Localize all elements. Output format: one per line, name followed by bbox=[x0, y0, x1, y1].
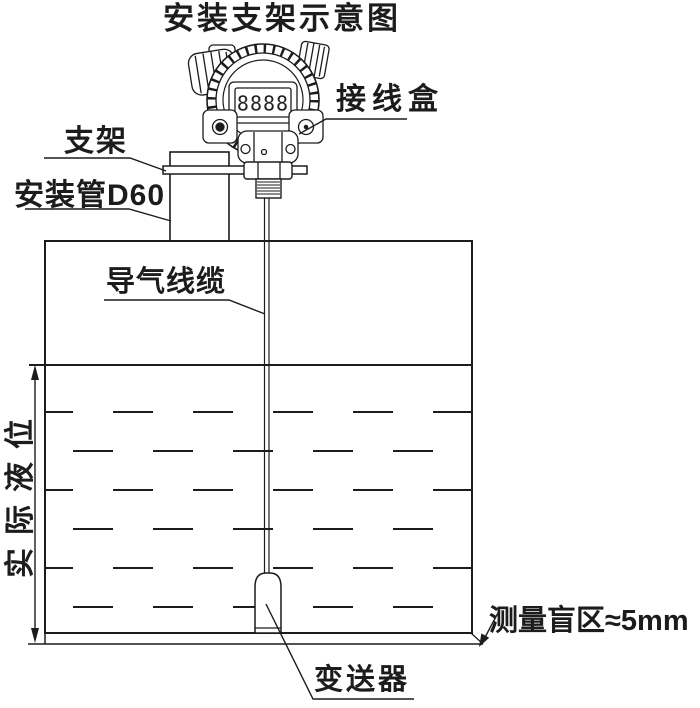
label-transmitter: 变送器 bbox=[314, 665, 410, 697]
hex-nut bbox=[244, 162, 292, 179]
label-blind-zone: 测量盲区≈5mm bbox=[489, 606, 689, 638]
label-bracket: 支架 bbox=[64, 125, 128, 158]
diagram-stage: 8888 bbox=[0, 0, 700, 708]
label-air-cable: 导气线缆 bbox=[106, 267, 226, 299]
neck-yoke bbox=[238, 131, 298, 163]
label-mounting-pipe: 安装管D60 bbox=[14, 179, 165, 212]
left-ear bbox=[203, 110, 237, 143]
label-actual-level: 实际液位 bbox=[4, 397, 34, 587]
leader-bracket bbox=[44, 158, 166, 171]
lcd-display-value: 8888 bbox=[237, 92, 289, 116]
probe bbox=[255, 573, 281, 633]
bottom-plate bbox=[28, 633, 483, 644]
threaded-stud bbox=[256, 179, 281, 198]
page-title: 安装支架示意图 bbox=[150, 2, 414, 36]
label-junction-box: 接线盒 bbox=[336, 83, 444, 116]
